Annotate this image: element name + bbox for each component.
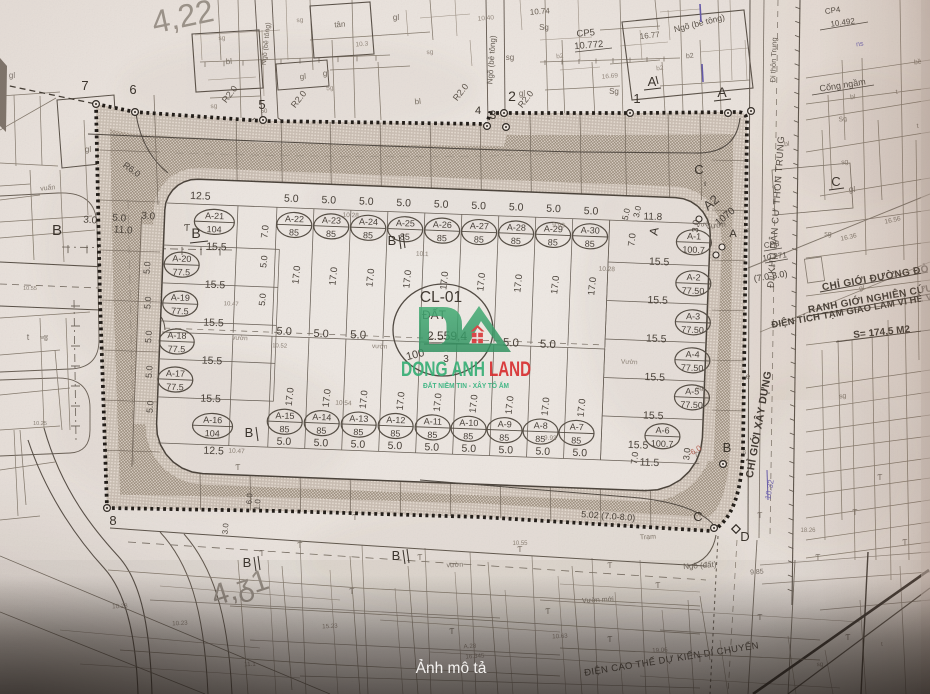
svg-text:DONG ANH: DONG ANH <box>401 358 485 381</box>
svg-text:LAND: LAND <box>489 358 531 381</box>
svg-text:ĐẤT NIỀM TIN - XÂY TỔ ẤM: ĐẤT NIỀM TIN - XÂY TỔ ẤM <box>423 380 509 390</box>
